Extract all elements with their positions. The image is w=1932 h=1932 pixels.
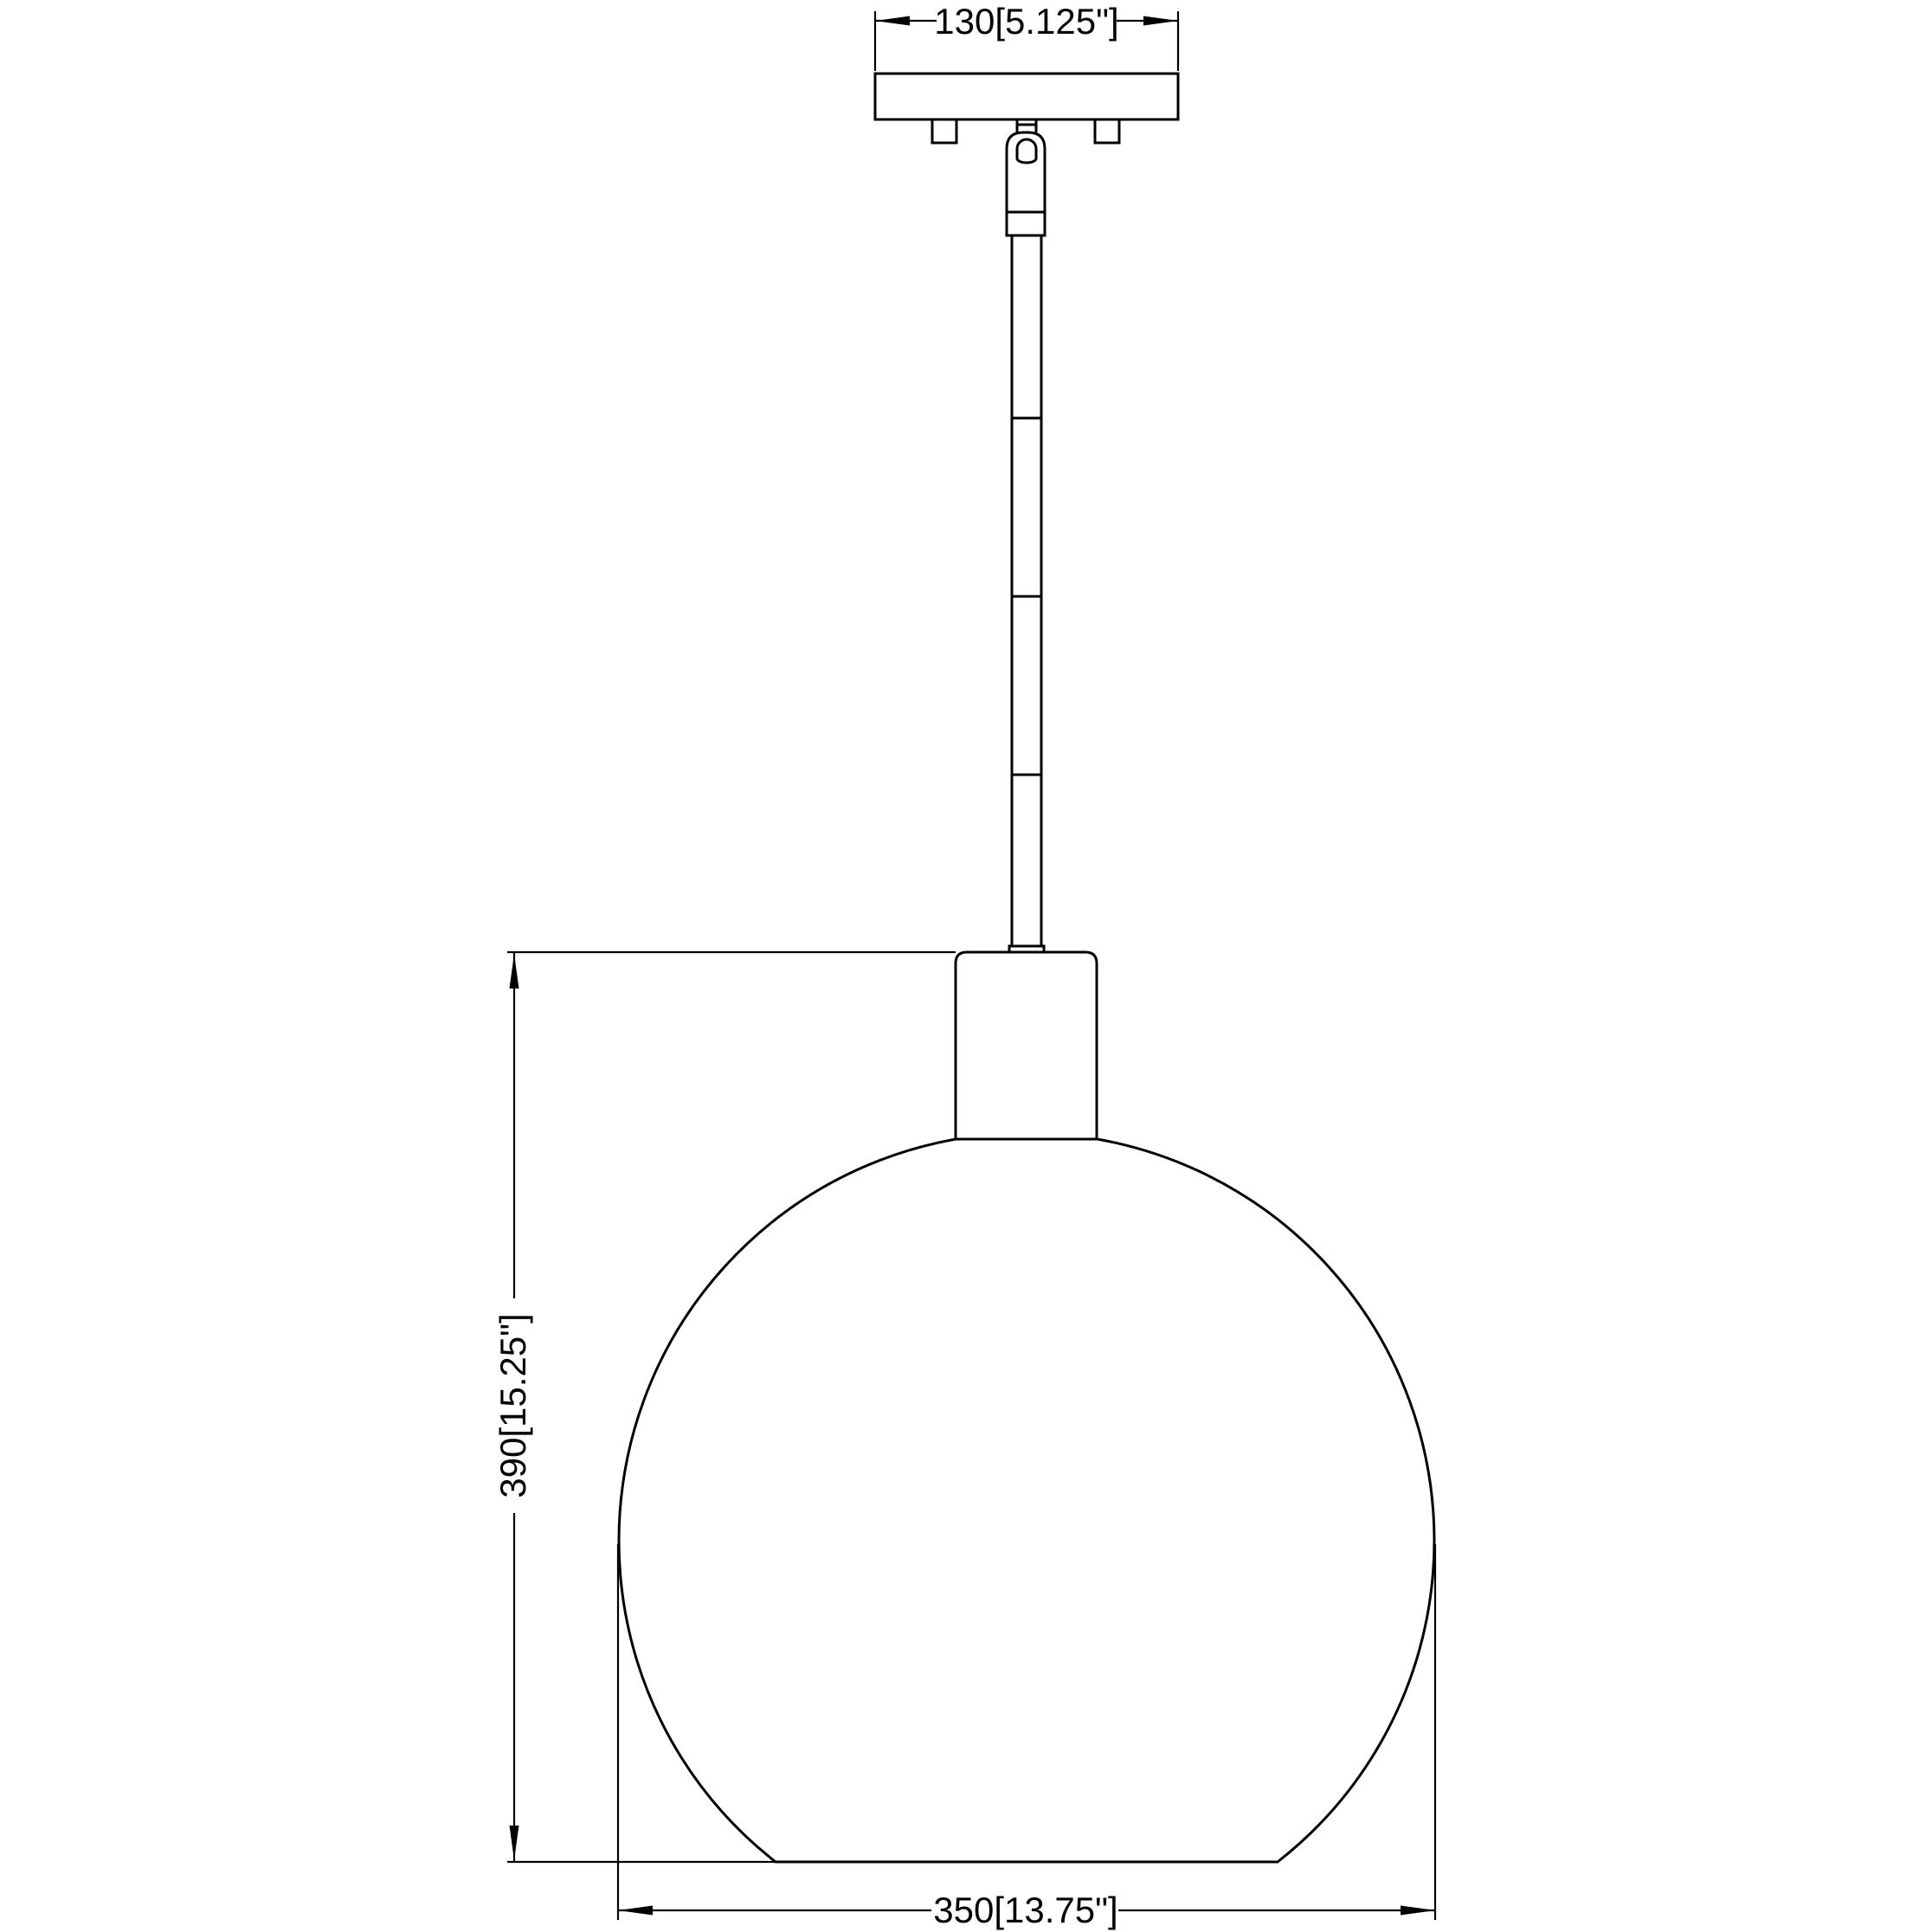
swivel-ball [1017, 139, 1036, 163]
canopy-width-arrow-left [875, 16, 910, 26]
diameter-label: 350[13.75"] [933, 1890, 1117, 1930]
height-label: 390[15.25"] [493, 1313, 533, 1497]
drawing-canvas: 130[5.125"] 390[15.25"] 350[13.75"] [0, 0, 1932, 1932]
canopy-width-label: 130[5.125"] [934, 1, 1118, 42]
canopy-width-arrow-right [1143, 16, 1178, 26]
mounting-screw-right [1095, 119, 1119, 143]
pendant-fixture [619, 74, 1434, 1862]
pendant-dimension-drawing: 130[5.125"] 390[15.25"] 350[13.75"] [0, 0, 1932, 1932]
ceiling-canopy [875, 74, 1178, 119]
mounting-screw-left [932, 119, 956, 143]
stem-rod [1012, 235, 1041, 946]
height-arrow-bottom [510, 1826, 519, 1860]
globe-shade [619, 1133, 1434, 1862]
height-arrow-top [510, 954, 519, 989]
diameter-arrow-right [1401, 1906, 1435, 1916]
diameter-arrow-left [618, 1906, 653, 1916]
socket-neck [956, 952, 1097, 1139]
